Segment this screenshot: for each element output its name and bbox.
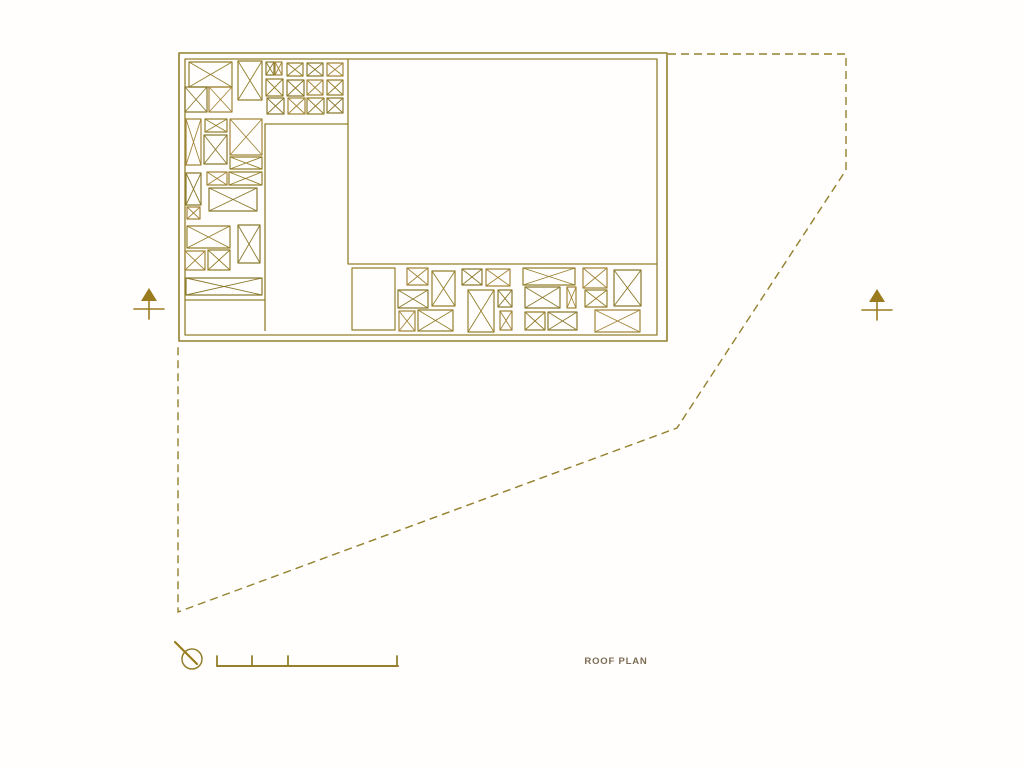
north-arrow-right-head	[869, 289, 885, 302]
roof-plan-drawing	[0, 0, 1024, 768]
property-boundary-line	[178, 54, 846, 612]
partition-wall	[348, 59, 657, 264]
drawing-title: ROOF PLAN	[560, 656, 672, 667]
roof-plan-page: ROOF PLAN	[0, 0, 1024, 768]
building-outer-wall	[179, 53, 667, 341]
north-indicator-needle	[175, 642, 197, 664]
north-arrow-left-head	[141, 288, 157, 301]
partition-wall	[265, 124, 348, 331]
roof-box	[352, 268, 395, 330]
